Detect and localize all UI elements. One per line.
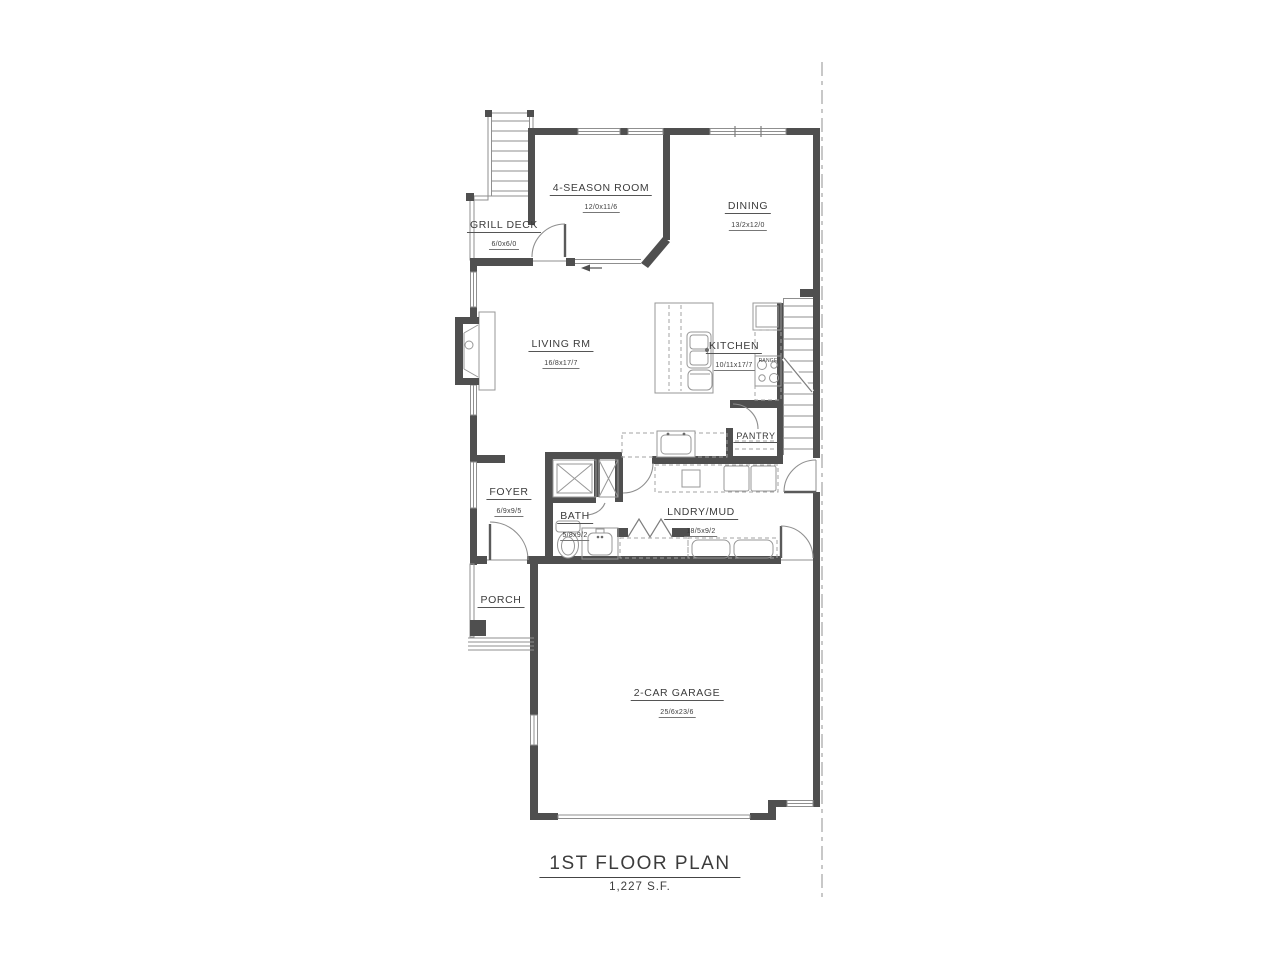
plan-area: 1,227 S.F. xyxy=(539,881,740,893)
plan-title: 1ST FLOOR PLAN xyxy=(539,853,740,878)
floor-plan-drawing: GRILL DECK 6/0x6/0 4-SEASON ROOM 12/0x11… xyxy=(0,0,1280,960)
label-garage: 2-CAR GARAGE 25/6x23/6 xyxy=(631,683,724,720)
label-laundry: LNDRY/MUD 18/5x9/2 xyxy=(664,502,738,539)
label-pantry: PANTRY xyxy=(733,426,778,444)
utility-sink-fixture xyxy=(657,431,695,457)
refrigerator-fixture xyxy=(753,303,781,330)
laundry-counter xyxy=(655,465,778,492)
shower-fixture xyxy=(553,460,596,497)
dishwasher-fixture xyxy=(688,370,712,390)
label-grill-deck: GRILL DECK 6/0x6/0 xyxy=(467,215,541,252)
label-bath: BATH 5/8x9/2 xyxy=(557,506,593,543)
door-arcs xyxy=(490,224,816,560)
slider-arrow-icon xyxy=(581,265,602,272)
fireplace-fixture xyxy=(455,312,495,390)
label-living-room: LIVING RM 16/8x17/7 xyxy=(528,334,593,371)
label-kitchen: KITCHEN 10/11x17/7 xyxy=(706,336,762,373)
label-range: RANGE xyxy=(759,349,778,367)
deck-stairs xyxy=(485,110,534,196)
floor-plan-canvas xyxy=(0,0,1280,960)
label-dining: DINING 13/2x12/0 xyxy=(725,196,771,233)
label-season-room: 4-SEASON ROOM 12/0x11/6 xyxy=(550,178,652,215)
garage-door xyxy=(558,815,750,819)
label-foyer: FOYER 6/9x9/5 xyxy=(486,482,531,519)
slider-opening xyxy=(575,260,641,264)
plan-title-block: 1ST FLOOR PLAN 1,227 S.F. xyxy=(539,853,740,893)
label-porch: PORCH xyxy=(478,590,525,608)
interior-stairs xyxy=(784,298,814,455)
